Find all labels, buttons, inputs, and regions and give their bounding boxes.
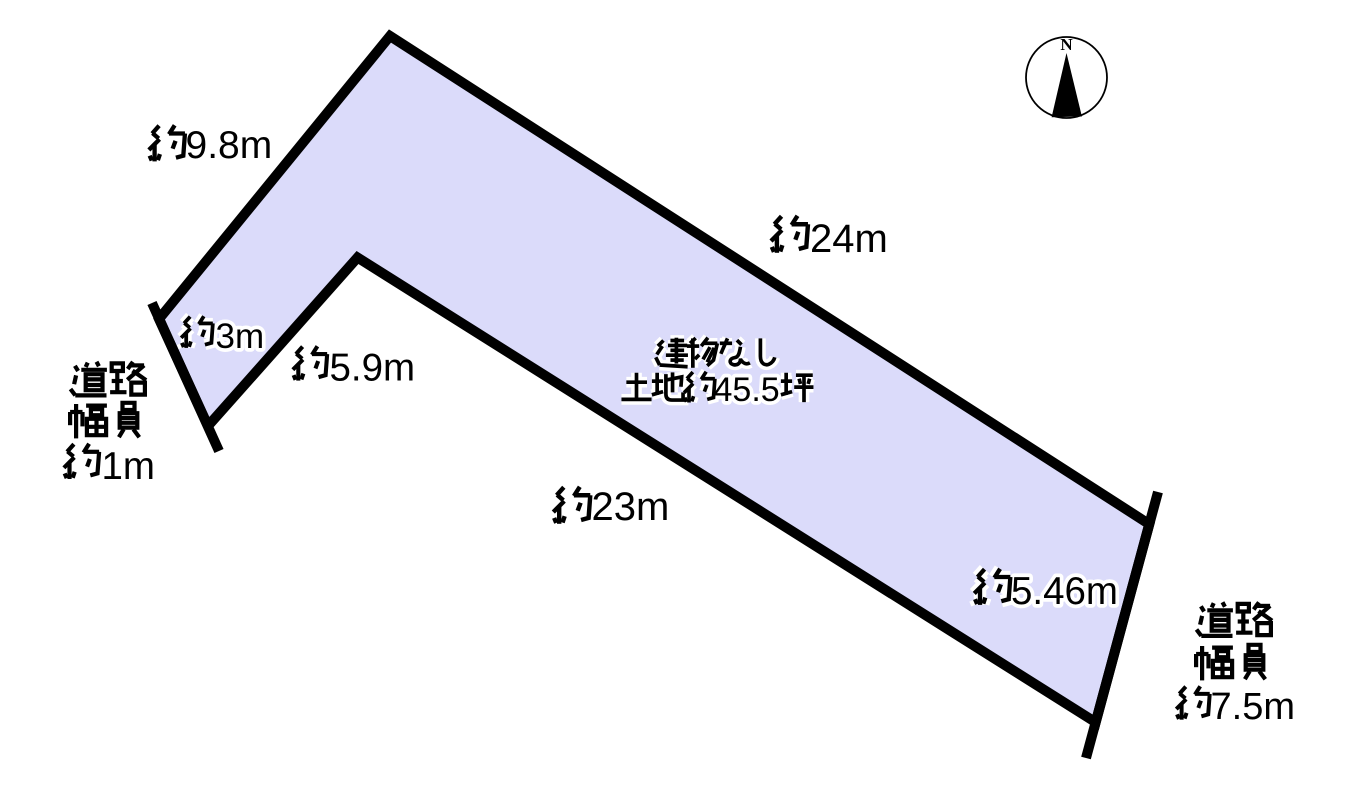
- svg-text:7.5m: 7.5m: [1211, 686, 1295, 728]
- svg-text:1m: 1m: [102, 445, 155, 488]
- svg-text:23m: 23m: [592, 485, 670, 529]
- svg-text:9.8m: 9.8m: [186, 124, 273, 167]
- svg-text:5.9m: 5.9m: [330, 347, 416, 390]
- svg-text:3m: 3m: [216, 317, 265, 356]
- svg-text:24m: 24m: [810, 217, 888, 261]
- svg-text:45.5: 45.5: [714, 371, 780, 409]
- svg-text:5.46m: 5.46m: [1011, 570, 1118, 613]
- svg-text:N: N: [1060, 35, 1073, 54]
